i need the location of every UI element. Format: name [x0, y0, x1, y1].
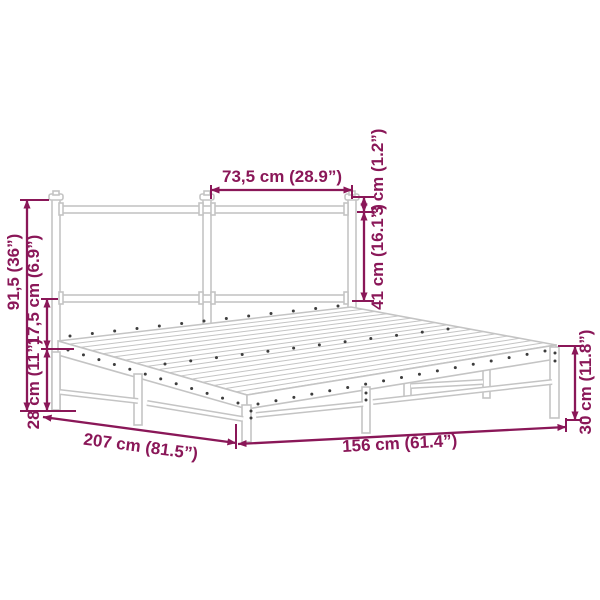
- hole-dot-foot-rail: [257, 403, 260, 406]
- rail-bracket: [344, 203, 348, 215]
- bolt-dot-leg: [250, 417, 253, 420]
- hole-dot-head-edge: [225, 317, 228, 320]
- bolt-dot-leg: [554, 352, 557, 355]
- hole-dot-foot-rail: [346, 386, 349, 389]
- hole-dot-side-rail: [175, 382, 178, 385]
- bed-frame-diagram-svg: 73,5 cm (28.9”) 3 cm (1.2”) 41 cm (16.1”…: [0, 0, 600, 600]
- hole-dot-head-edge: [203, 320, 206, 323]
- hole-dot-center-support: [266, 350, 269, 353]
- hole-dot-head-edge: [136, 327, 139, 330]
- hole-dot-side-rail: [159, 377, 162, 380]
- label-clearance: 28 cm (11”): [24, 339, 43, 430]
- rail-bracket: [211, 292, 215, 304]
- headboard-lower-rail: [60, 295, 348, 302]
- hole-dot-head-edge: [113, 330, 116, 333]
- hole-dot-foot-rail: [526, 353, 529, 356]
- label-headboard-top-bar: 3 cm (1.2”): [368, 129, 387, 216]
- hole-dot-foot-rail: [454, 366, 457, 369]
- cross-brace-core: [60, 392, 138, 401]
- hole-dot-foot-rail: [292, 396, 295, 399]
- headboard-post-middle: [203, 198, 211, 328]
- hole-dot-foot-rail: [400, 376, 403, 379]
- hole-dot-center-support: [318, 343, 321, 346]
- product-dimension-diagram: 73,5 cm (28.9”) 3 cm (1.2”) 41 cm (16.1”…: [0, 0, 600, 600]
- hole-dot-foot-rail: [274, 399, 277, 402]
- rail-bracket: [199, 292, 203, 304]
- hole-dot-center-support: [189, 359, 192, 362]
- hole-dot-side-rail: [237, 402, 240, 405]
- hole-dot-head-edge: [158, 325, 161, 328]
- hole-dot-foot-rail: [328, 389, 331, 392]
- hole-dot-head-edge: [337, 305, 340, 308]
- hole-dot-head-edge: [69, 335, 72, 338]
- bed-leg-head-left: [52, 352, 60, 410]
- hole-dot-center-support: [292, 347, 295, 350]
- bed-frame-drawing: [49, 191, 559, 442]
- label-rail-height: 30 cm (11.8”): [576, 330, 595, 435]
- hole-dot-foot-rail: [364, 383, 367, 386]
- hole-dot-head-edge: [314, 307, 317, 310]
- label-total-height: 91,5 (36”): [4, 234, 23, 311]
- rail-bracket: [59, 292, 63, 304]
- bolt-dot-leg: [250, 410, 253, 413]
- hole-dot-center-support: [241, 353, 244, 356]
- hole-dot-center-support: [421, 331, 424, 334]
- hole-dot-center-support: [447, 328, 450, 331]
- hole-dot-foot-rail: [310, 393, 313, 396]
- hole-dot-side-rail: [221, 397, 224, 400]
- label-headboard-section-width: 73,5 cm (28.9”): [222, 167, 342, 186]
- hole-dot-foot-rail: [472, 363, 475, 366]
- hole-dot-foot-rail: [418, 373, 421, 376]
- hole-dot-side-rail: [128, 368, 131, 371]
- post-knob-middle: [204, 191, 210, 195]
- rail-bracket: [211, 203, 215, 215]
- hole-dot-side-rail: [97, 358, 100, 361]
- hole-dot-side-rail: [144, 373, 147, 376]
- hole-dot-foot-rail: [544, 350, 547, 353]
- hole-dot-center-support: [369, 337, 372, 340]
- label-headboard-panel-height: 41 cm (16.1”): [368, 204, 387, 310]
- hole-dot-side-rail: [113, 363, 116, 366]
- hole-dot-foot-rail: [436, 369, 439, 372]
- post-knob-left: [53, 191, 59, 195]
- hole-dot-head-edge: [247, 315, 250, 318]
- hole-dot-foot-rail: [508, 356, 511, 359]
- cross-brace-core: [147, 403, 243, 419]
- hole-dot-side-rail: [82, 353, 85, 356]
- hole-dot-center-support: [164, 363, 167, 366]
- headboard-post-right: [348, 198, 356, 310]
- rail-bracket: [199, 203, 203, 215]
- label-gap: 17,5 cm (6.9”): [24, 235, 43, 346]
- hole-dot-side-rail: [190, 387, 193, 390]
- bolt-dot-leg: [365, 392, 368, 395]
- hole-dot-head-edge: [270, 312, 273, 315]
- rail-bracket: [59, 203, 63, 215]
- label-bed-width: 156 cm (61.4”): [342, 431, 458, 456]
- hole-dot-side-rail: [206, 392, 209, 395]
- hole-dot-center-support: [344, 340, 347, 343]
- hole-dot-head-edge: [180, 322, 183, 325]
- bolt-dot-leg: [365, 399, 368, 402]
- hole-dot-center-support: [395, 334, 398, 337]
- bolt-dot-leg: [554, 360, 557, 363]
- hole-dot-head-edge: [292, 310, 295, 313]
- rail-bracket: [344, 292, 348, 304]
- hole-dot-foot-rail: [382, 379, 385, 382]
- hole-dot-foot-rail: [490, 359, 493, 362]
- hole-dot-center-support: [215, 356, 218, 359]
- headboard-top-rail: [60, 206, 348, 213]
- hole-dot-head-edge: [91, 332, 94, 335]
